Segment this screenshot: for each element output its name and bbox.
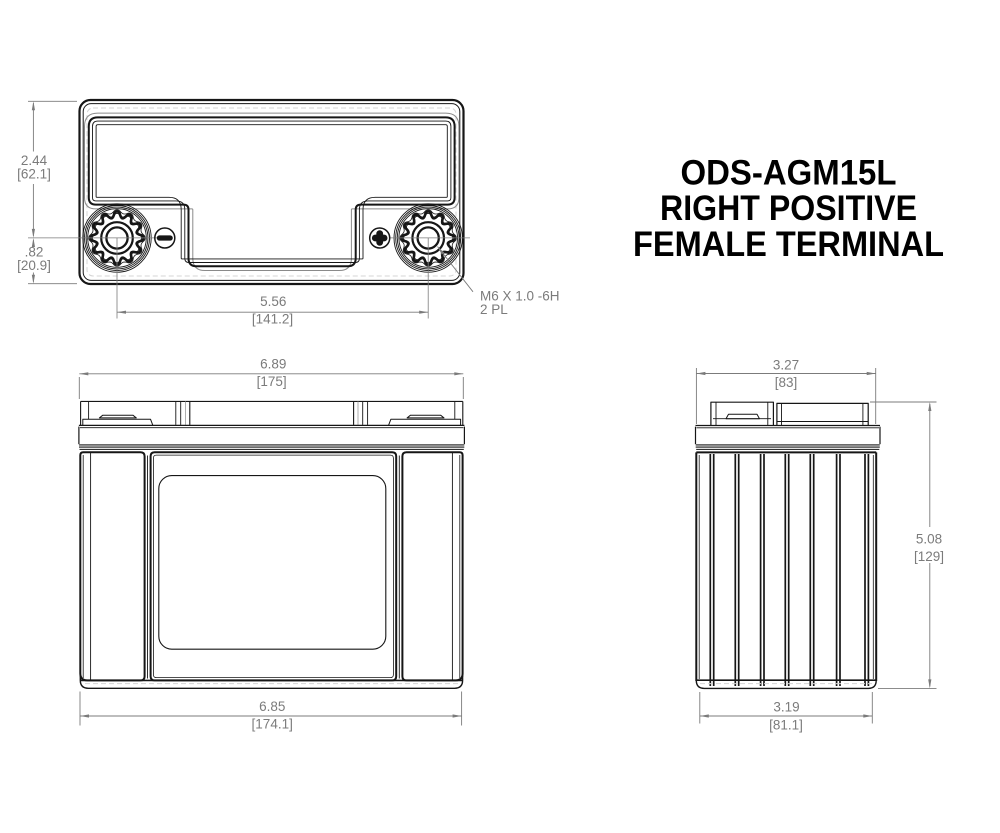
svg-text:5.56: 5.56 xyxy=(260,294,286,309)
svg-text:[175]: [175] xyxy=(257,374,287,389)
svg-text:[141.2]: [141.2] xyxy=(252,312,293,327)
svg-text:3.19: 3.19 xyxy=(773,700,799,715)
svg-text:ODS-AGM15L: ODS-AGM15L xyxy=(681,154,897,193)
svg-text:2 PL: 2 PL xyxy=(480,302,508,317)
svg-text:FEMALE TERMINAL: FEMALE TERMINAL xyxy=(633,225,944,264)
svg-text:[83]: [83] xyxy=(775,375,798,390)
svg-text:[62.1]: [62.1] xyxy=(17,167,51,182)
svg-text:6.89: 6.89 xyxy=(260,357,286,372)
svg-text:5.08: 5.08 xyxy=(916,532,942,547)
svg-text:3.27: 3.27 xyxy=(773,358,799,373)
svg-text:RIGHT POSITIVE: RIGHT POSITIVE xyxy=(660,189,917,228)
svg-text:6.85: 6.85 xyxy=(259,699,285,714)
svg-text:[81.1]: [81.1] xyxy=(769,718,803,733)
svg-text:[174.1]: [174.1] xyxy=(252,717,293,732)
svg-text:[20.9]: [20.9] xyxy=(17,258,51,273)
svg-text:[129]: [129] xyxy=(914,549,944,564)
